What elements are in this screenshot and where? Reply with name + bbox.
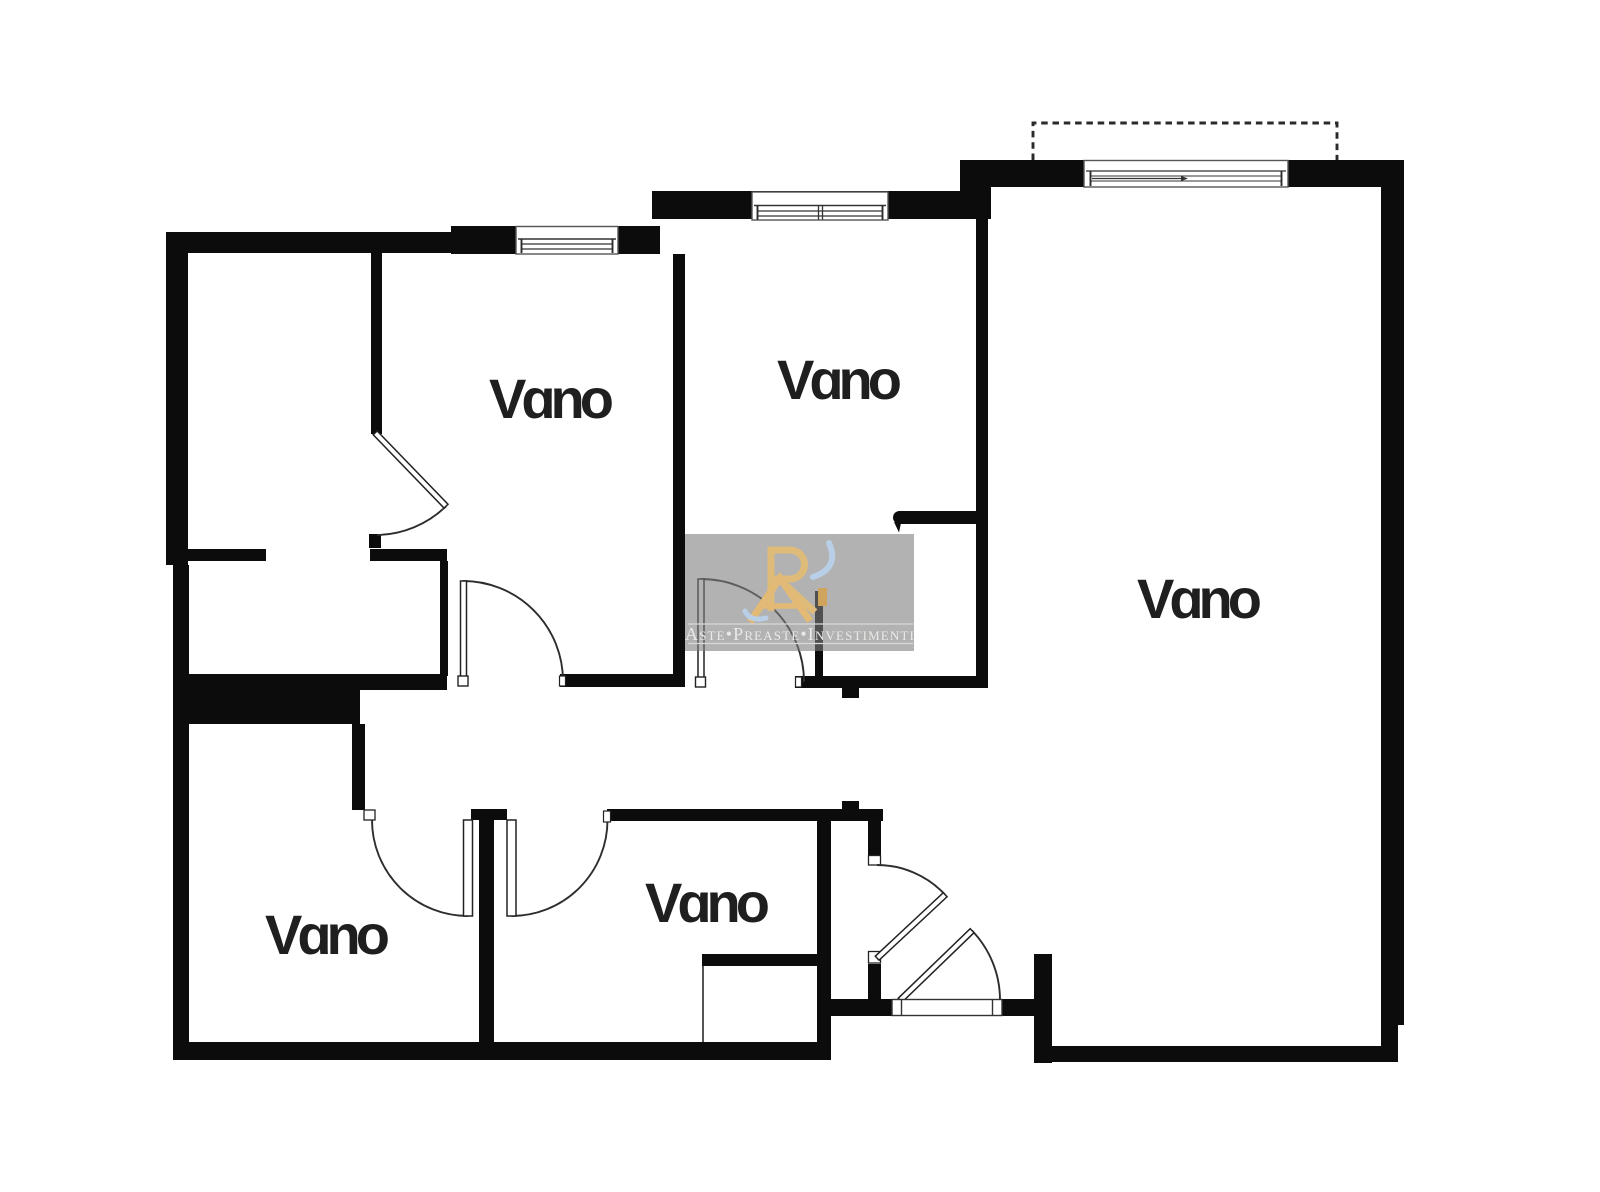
svg-text:Vɑno: Vɑno <box>1137 567 1261 630</box>
svg-text:Vɑno: Vɑno <box>645 871 769 934</box>
svg-text:Vɑno: Vɑno <box>489 367 613 430</box>
svg-text:Vɑno: Vɑno <box>777 348 901 411</box>
svg-text:Vɑno: Vɑno <box>265 903 389 966</box>
svg-text:Aste•Preaste•Investimenti: Aste•Preaste•Investimenti <box>685 624 915 644</box>
